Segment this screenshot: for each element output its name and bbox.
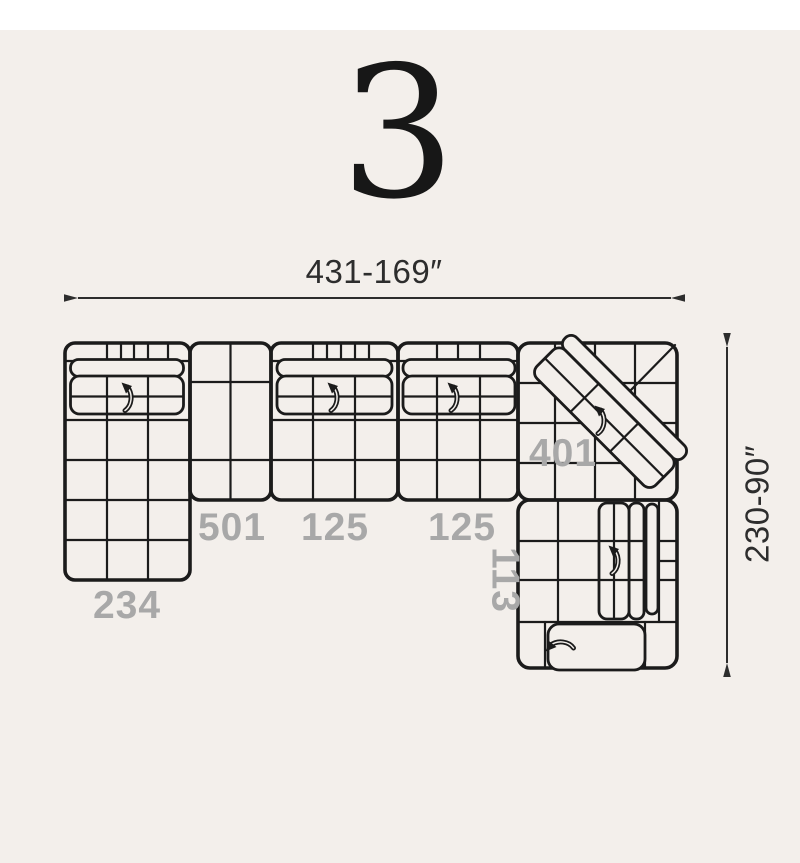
module-label-corner: 401 bbox=[529, 432, 597, 475]
backrest-cushion bbox=[403, 360, 515, 415]
sofa-plan-diagram: 3 431-169″ 230-90″ 234 501 bbox=[0, 0, 800, 863]
armrest-pad bbox=[646, 504, 658, 614]
backrest-cushion-vertical bbox=[599, 503, 644, 619]
top-white-strip bbox=[0, 0, 800, 30]
module-label-seat-2: 125 bbox=[428, 506, 496, 549]
module-label-chaise: 234 bbox=[93, 584, 161, 627]
horizontal-dimension-label: 431-169″ bbox=[306, 253, 443, 290]
seat-cushion-bottom bbox=[548, 624, 645, 670]
module-label-armless: 501 bbox=[198, 506, 266, 549]
plan-number: 3 bbox=[340, 27, 456, 239]
module-label-seat-right: 113 bbox=[484, 547, 527, 613]
vertical-dimension-label: 230-90″ bbox=[739, 445, 776, 563]
sofa-plan-page: 3 431-169″ 230-90″ 234 501 bbox=[0, 0, 800, 863]
module-label-seat-1: 125 bbox=[301, 506, 369, 549]
